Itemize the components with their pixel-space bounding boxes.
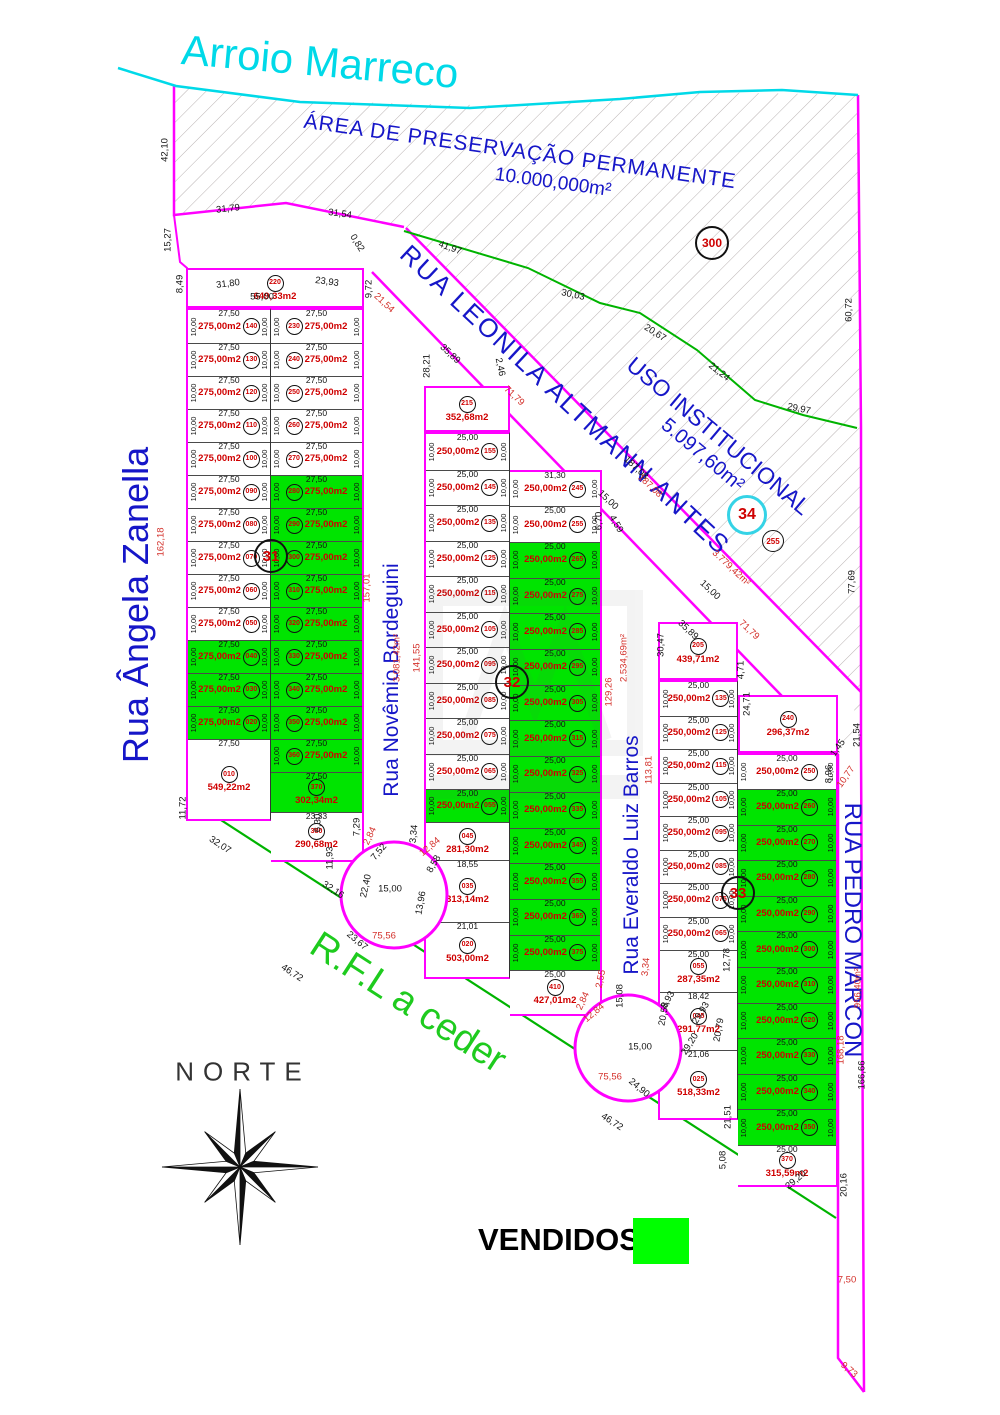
dimension-label: 71,79 bbox=[737, 618, 762, 642]
lot-33-310: 25,00250,00m231010,0010,00 bbox=[738, 967, 836, 1003]
lot-32-275: 25,00250,00m227510,0010,00 bbox=[510, 578, 600, 614]
lot-32-255: 25,00250,00m225510,0010,00 bbox=[510, 506, 600, 542]
lot-area: 313,14m2 bbox=[446, 895, 489, 905]
lot-depth-dim: 10,00 bbox=[352, 582, 361, 601]
dimension-label: 7,50 bbox=[838, 1275, 857, 1286]
lot-area: 275,00m2 bbox=[198, 718, 241, 728]
lot-31-130: 27,50275,00m213010,0010,00 bbox=[188, 343, 270, 376]
lot-depth-dim: 10,00 bbox=[590, 944, 599, 963]
lot-area: 275,00m2 bbox=[198, 586, 241, 596]
lot-number: 310 bbox=[286, 583, 303, 600]
lot-depth-dim: 10,00 bbox=[272, 747, 281, 766]
dimension-label: 55,00 bbox=[250, 292, 274, 303]
lot-frontage-dim: 27,50 bbox=[188, 442, 270, 451]
lot-area: 439,71m2 bbox=[677, 655, 720, 665]
lot-number: 345 bbox=[569, 837, 586, 854]
sold-legend-label: VENDIDOS bbox=[478, 1222, 640, 1257]
lot-depth-dim: 10,00 bbox=[427, 442, 436, 461]
lot-frontage-dim: 27,50 bbox=[271, 607, 362, 616]
lot-frontage-dim: 21,01 bbox=[426, 922, 509, 931]
dimension-label: 8,49 bbox=[175, 275, 186, 294]
lot-33-300: 25,00250,00m230010,0010,00 bbox=[738, 931, 836, 967]
lot-31-330: 27,50330275,00m210,0010,00 bbox=[271, 640, 362, 673]
lot-frontage-dim: 25,00 bbox=[660, 850, 737, 859]
dimension-label: 29,97 bbox=[786, 401, 812, 417]
lot-number: 095 bbox=[481, 657, 498, 674]
lot-depth-dim: 10,00 bbox=[272, 681, 281, 700]
marker-circle-33: 33 bbox=[721, 876, 755, 910]
lot-number: 355 bbox=[569, 873, 586, 890]
lot-depth-dim: 10,00 bbox=[260, 582, 269, 601]
dimension-label: 35,89 bbox=[438, 342, 463, 366]
lot-number: 335 bbox=[569, 802, 586, 819]
lot-32-075: 25,00250,00m207510,0010,00 bbox=[426, 718, 509, 754]
lot-depth-dim: 10,00 bbox=[189, 681, 198, 700]
lot-32-035: 18,55035313,14m2 bbox=[426, 860, 509, 922]
lot-depth-dim: 10,00 bbox=[661, 689, 670, 708]
compass-point bbox=[240, 1132, 275, 1167]
lot-depth-dim: 10,00 bbox=[427, 478, 436, 497]
lot-32-355: 25,00250,00m235510,0010,00 bbox=[510, 863, 600, 899]
lot-depth-dim: 10,00 bbox=[499, 478, 508, 497]
lot-depth-dim: 10,00 bbox=[739, 940, 748, 959]
lot-depth-dim: 10,00 bbox=[511, 587, 520, 606]
dimension-label: 4,59 bbox=[607, 513, 626, 535]
lot-31-060: 27,50275,00m206010,0010,00 bbox=[188, 574, 270, 607]
lot-number: 240 bbox=[286, 352, 303, 369]
lot-depth-dim: 10,00 bbox=[739, 1083, 748, 1102]
lot-depth-dim: 10,00 bbox=[260, 317, 269, 336]
dimension-label: 75,56 bbox=[372, 931, 396, 942]
lot-area: 275,00m2 bbox=[305, 388, 348, 398]
lot-31-100: 27,50275,00m210010,0010,00 bbox=[188, 442, 270, 475]
free-lot-240-box: 240296,37m2 bbox=[738, 695, 838, 753]
lot-31-290: 27,50290275,00m210,0010,00 bbox=[271, 508, 362, 541]
lot-area: 275,00m2 bbox=[305, 685, 348, 695]
lot-depth-dim: 10,00 bbox=[511, 872, 520, 891]
lot-area: 250,00m2 bbox=[756, 767, 799, 777]
lot-depth-dim: 10,00 bbox=[260, 714, 269, 733]
dimension-label: 15,27 bbox=[163, 228, 174, 252]
lot-depth-dim: 10,00 bbox=[511, 801, 520, 820]
lot-depth-dim: 10,00 bbox=[427, 549, 436, 568]
lot-number: 300 bbox=[286, 550, 303, 567]
lot-depth-dim: 10,00 bbox=[272, 384, 281, 403]
dimension-label: 32,07 bbox=[207, 834, 233, 856]
lot-number: 325 bbox=[569, 766, 586, 783]
quadra-33-right-column: 25,00250,00m225010,0010,0025,00250,00m22… bbox=[738, 753, 838, 1187]
lot-depth-dim: 10,00 bbox=[590, 622, 599, 641]
lot-area: 250,00m2 bbox=[756, 802, 799, 812]
lot-31-310: 27,50310275,00m210,0010,00 bbox=[271, 574, 362, 607]
lot-frontage-dim: 27,50 bbox=[188, 640, 270, 649]
lot-area: 250,00m2 bbox=[756, 1123, 799, 1133]
subdivision-plat-map: Arroio Marreco ÁREA DE PRESERVAÇÃO PERMA… bbox=[0, 0, 1000, 1415]
lot-frontage-dim: 25,00 bbox=[660, 681, 737, 690]
lot-31-090: 27,50275,00m209010,0010,00 bbox=[188, 475, 270, 508]
lot-32-245: 31,30250,00m224510,0010,00 bbox=[510, 472, 600, 506]
lot-area: 250,00m2 bbox=[524, 948, 567, 958]
lot-depth-dim: 10,00 bbox=[427, 514, 436, 533]
dimension-label: 141,55 bbox=[412, 643, 423, 672]
compass-point bbox=[205, 1132, 240, 1167]
lot-number: 320 bbox=[801, 1012, 818, 1029]
lot-number: 110 bbox=[243, 418, 260, 435]
lot-number: 050 bbox=[243, 616, 260, 633]
lot-depth-dim: 10,00 bbox=[826, 1083, 835, 1102]
lot-31-030: 27,50275,00m203010,0010,00 bbox=[188, 673, 270, 706]
lot-number: 145 bbox=[481, 479, 498, 496]
lot-number: 140 bbox=[243, 318, 260, 335]
lot-depth-dim: 10,00 bbox=[189, 384, 198, 403]
lot-31-050: 27,50275,00m205010,0010,00 bbox=[188, 607, 270, 640]
lot-depth-dim: 10,00 bbox=[427, 727, 436, 746]
dimension-label: 8,96 bbox=[824, 765, 835, 784]
sold-legend-swatch bbox=[633, 1218, 689, 1264]
lot-31-040: 27,50275,00m204010,0010,00 bbox=[188, 640, 270, 673]
compass-point bbox=[162, 1167, 240, 1173]
lot-frontage-dim: 25,00 bbox=[510, 899, 600, 908]
lot-frontage-dim: 27,50 bbox=[271, 640, 362, 649]
lot-frontage-dim: 25,00 bbox=[426, 789, 509, 798]
dimension-label: 6,30 bbox=[313, 814, 324, 833]
dimension-label: 956,40m² bbox=[853, 968, 864, 1008]
lot-number: 370 bbox=[308, 779, 325, 796]
lot-frontage-dim: 27,50 bbox=[188, 343, 270, 352]
lot-33-135: 25,00250,00m213510,0010,00 bbox=[660, 682, 737, 716]
lot-depth-dim: 10,00 bbox=[739, 798, 748, 817]
lot-frontage-dim: 25,00 bbox=[660, 749, 737, 758]
lot-depth-dim: 10,00 bbox=[661, 757, 670, 776]
lot-depth-dim: 10,00 bbox=[826, 834, 835, 853]
lot-31-010: 27,50010549,22m2 bbox=[188, 739, 270, 819]
lot-area: 250,00m2 bbox=[524, 912, 567, 922]
lot-depth-dim: 10,00 bbox=[499, 442, 508, 461]
lot-frontage-dim: 27,50 bbox=[188, 673, 270, 682]
lot-32-020: 21,01020503,00m2 bbox=[426, 922, 509, 977]
lot-33-115: 25,00250,00m211510,0010,00 bbox=[660, 749, 737, 783]
lot-frontage-dim: 25,00 bbox=[738, 1003, 836, 1012]
lot-area: 275,00m2 bbox=[305, 751, 348, 761]
lot-depth-dim: 10,00 bbox=[661, 824, 670, 843]
lot-area: 250,00m2 bbox=[437, 447, 480, 457]
lot-area: 250,00m2 bbox=[437, 660, 480, 670]
lot-frontage-dim: 27,50 bbox=[188, 706, 270, 715]
dimension-label: 21,24 bbox=[706, 360, 732, 383]
lot-depth-dim: 10,00 bbox=[727, 924, 736, 943]
lot-depth-dim: 10,00 bbox=[189, 417, 198, 436]
lot-free-215: 215352,68m2 bbox=[426, 388, 508, 430]
lot-label: 035313,14m2 bbox=[426, 861, 509, 922]
lot-frontage-dim: 27,50 bbox=[271, 706, 362, 715]
lot-frontage-dim: 25,00 bbox=[510, 756, 600, 765]
lot-frontage-dim: 27,50 bbox=[271, 376, 362, 385]
lot-depth-dim: 10,00 bbox=[352, 317, 361, 336]
lot-depth-dim: 10,00 bbox=[499, 585, 508, 604]
lot-area: 503,00m2 bbox=[446, 954, 489, 964]
sold-legend: VENDIDOS bbox=[478, 1222, 640, 1258]
lot-32-065: 25,00250,00m206510,0010,00 bbox=[426, 754, 509, 790]
lot-depth-dim: 10,00 bbox=[189, 615, 198, 634]
lot-number: 340 bbox=[286, 682, 303, 699]
lot-depth-dim: 10,00 bbox=[272, 516, 281, 535]
lot-32-105: 25,00250,00m210510,0010,00 bbox=[426, 612, 509, 648]
lot-number: 245 bbox=[569, 481, 586, 498]
dimension-label: 162,18 bbox=[156, 527, 167, 556]
lot-32-365: 25,00250,00m236510,0010,00 bbox=[510, 899, 600, 935]
lot-area: 250,00m2 bbox=[668, 929, 711, 939]
lot-number: 055 bbox=[481, 798, 498, 815]
lot-number: 260 bbox=[801, 799, 818, 816]
lot-depth-dim: 10,00 bbox=[727, 857, 736, 876]
lot-area: 275,00m2 bbox=[198, 685, 241, 695]
lot-label: 010549,22m2 bbox=[188, 740, 270, 819]
lot-depth-dim: 10,00 bbox=[590, 729, 599, 748]
dimension-label: 28,21 bbox=[422, 354, 433, 378]
dimension-label: 30,03 bbox=[560, 287, 586, 303]
lot-32-375: 25,00250,00m237510,0010,00 bbox=[510, 935, 600, 971]
lot-depth-dim: 10,00 bbox=[826, 1047, 835, 1066]
lot-area: 275,00m2 bbox=[305, 487, 348, 497]
lot-depth-dim: 10,00 bbox=[352, 714, 361, 733]
lot-depth-dim: 10,00 bbox=[826, 798, 835, 817]
lot-depth-dim: 10,00 bbox=[352, 417, 361, 436]
lot-area: 275,00m2 bbox=[305, 553, 348, 563]
lot-depth-dim: 10,00 bbox=[189, 450, 198, 469]
dimension-label: 22,40 bbox=[358, 873, 374, 899]
lot-area: 275,00m2 bbox=[305, 652, 348, 662]
dimension-label: 21,54 bbox=[372, 291, 397, 315]
marker-circle-31: 31 bbox=[254, 539, 288, 573]
lot-number: 290 bbox=[801, 906, 818, 923]
lot-area: 250,00m2 bbox=[524, 591, 567, 601]
lot-31-320: 27,50320275,00m210,0010,00 bbox=[271, 607, 362, 640]
lot-number: 135 bbox=[481, 515, 498, 532]
dimension-label: 46,72 bbox=[279, 962, 305, 984]
quadra-32-left-column: 25,00250,00m215510,0010,0025,00250,00m21… bbox=[424, 432, 510, 979]
lot-area: 281,30m2 bbox=[446, 845, 489, 855]
lot-number: 260 bbox=[286, 418, 303, 435]
lot-number: 310 bbox=[801, 977, 818, 994]
compass-point bbox=[240, 1089, 246, 1167]
lot-frontage-dim: 27,50 bbox=[271, 574, 362, 583]
lot-frontage-dim: 25,00 bbox=[510, 578, 600, 587]
lot-depth-dim: 10,00 bbox=[739, 1011, 748, 1030]
lot-depth-dim: 10,00 bbox=[499, 727, 508, 746]
free-lot-215-box: 215352,68m2 bbox=[424, 386, 510, 432]
lot-depth-dim: 10,00 bbox=[272, 351, 281, 370]
lot-frontage-dim: 25,00 bbox=[738, 967, 836, 976]
lot-depth-dim: 10,00 bbox=[260, 648, 269, 667]
free-lot-205-box: 205439,71m2 bbox=[658, 622, 738, 680]
lot-frontage-dim: 27,50 bbox=[188, 607, 270, 616]
lot-31-140: 27,50275,00m214010,0010,00 bbox=[188, 310, 270, 343]
compass-point bbox=[240, 1167, 318, 1173]
lot-area: 275,00m2 bbox=[305, 619, 348, 629]
lot-depth-dim: 10,00 bbox=[590, 658, 599, 677]
lot-frontage-dim: 25,00 bbox=[510, 828, 600, 837]
lot-number: 270 bbox=[801, 834, 818, 851]
lot-number: 255 bbox=[569, 516, 586, 533]
lot-number: 100 bbox=[243, 451, 260, 468]
lot-depth-dim: 10,00 bbox=[352, 549, 361, 568]
lot-31-370: 27,50370302,34m2 bbox=[271, 772, 362, 812]
dimension-label: 3.779,42m² bbox=[710, 548, 753, 589]
lot-number: 230 bbox=[286, 318, 303, 335]
dimension-label: 10,77 bbox=[835, 764, 858, 790]
lot-depth-dim: 10,00 bbox=[427, 656, 436, 675]
lot-number: 020 bbox=[459, 937, 476, 954]
lot-depth-dim: 10,00 bbox=[511, 765, 520, 784]
lot-area: 549,22m2 bbox=[208, 783, 251, 793]
dimension-label: 21,51 bbox=[723, 1105, 734, 1129]
lot-area: 296,37m2 bbox=[767, 728, 810, 738]
lot-32-265: 25,00250,00m226510,0010,00 bbox=[510, 542, 600, 578]
lot-number: 305 bbox=[569, 695, 586, 712]
lot-area: 250,00m2 bbox=[668, 828, 711, 838]
compass-point bbox=[205, 1167, 240, 1202]
lot-depth-dim: 10,00 bbox=[260, 615, 269, 634]
marker-circle-300: 300 bbox=[695, 226, 729, 260]
lot-33-350: 25,00250,00m235010,0010,00 bbox=[738, 1109, 836, 1145]
lot-31-270: 27,50270275,00m210,0010,00 bbox=[271, 442, 362, 475]
lot-frontage-dim: 27,50 bbox=[188, 475, 270, 484]
lot-depth-dim: 10,00 bbox=[511, 836, 520, 855]
lot-depth-dim: 10,00 bbox=[739, 976, 748, 995]
lot-area: 250,00m2 bbox=[756, 873, 799, 883]
lot-depth-dim: 10,00 bbox=[272, 582, 281, 601]
lot-number: 040 bbox=[243, 649, 260, 666]
lot-area: 250,00m2 bbox=[524, 484, 567, 494]
lot-33-320: 25,00250,00m232010,0010,00 bbox=[738, 1003, 836, 1039]
lot-depth-dim: 10,00 bbox=[427, 585, 436, 604]
lot-32-135: 25,00250,00m213510,0010,00 bbox=[426, 505, 509, 541]
lot-depth-dim: 10,00 bbox=[826, 1118, 835, 1137]
lot-depth-dim: 10,00 bbox=[189, 516, 198, 535]
lot-depth-dim: 10,00 bbox=[661, 790, 670, 809]
lot-depth-dim: 10,00 bbox=[590, 765, 599, 784]
lot-area: 275,00m2 bbox=[198, 454, 241, 464]
lot-area: 250,00m2 bbox=[756, 838, 799, 848]
compass-point bbox=[240, 1161, 318, 1167]
lot-number: 125 bbox=[481, 550, 498, 567]
lot-area: 302,34m2 bbox=[295, 796, 338, 806]
lot-33-085: 25,00250,00m208510,0010,00 bbox=[660, 850, 737, 884]
lot-frontage-dim: 25,00 bbox=[426, 433, 509, 442]
lot-depth-dim: 10,00 bbox=[427, 797, 436, 816]
dimension-label: 77,69 bbox=[847, 570, 858, 594]
lot-number: 265 bbox=[569, 552, 586, 569]
lot-frontage-dim: 25,00 bbox=[738, 789, 836, 798]
lot-depth-dim: 10,00 bbox=[352, 516, 361, 535]
lot-depth-dim: 10,00 bbox=[260, 681, 269, 700]
lot-area: 250,00m2 bbox=[756, 909, 799, 919]
lot-area: 250,00m2 bbox=[437, 696, 480, 706]
lot-depth-dim: 10,00 bbox=[511, 622, 520, 641]
lot-frontage-dim: 25,00 bbox=[510, 970, 600, 979]
lot-area: 250,00m2 bbox=[437, 589, 480, 599]
lot-depth-dim: 10,00 bbox=[661, 723, 670, 742]
lot-number: 220 bbox=[267, 275, 284, 292]
lot-area: 250,00m2 bbox=[524, 805, 567, 815]
lot-frontage-dim: 27,50 bbox=[188, 508, 270, 517]
lot-depth-dim: 10,00 bbox=[739, 1047, 748, 1066]
lot-depth-dim: 10,00 bbox=[661, 891, 670, 910]
lot-depth-dim: 10,00 bbox=[272, 417, 281, 436]
lot-depth-dim: 10,00 bbox=[511, 480, 520, 499]
lot-depth-dim: 10,00 bbox=[499, 620, 508, 639]
lot-area: 275,00m2 bbox=[198, 619, 241, 629]
lot-depth-dim: 10,00 bbox=[499, 797, 508, 816]
lot-33-330: 25,00250,00m233010,0010,00 bbox=[738, 1038, 836, 1074]
dimension-label: 113,81 bbox=[644, 756, 655, 784]
lot-frontage-dim: 27,50 bbox=[271, 343, 362, 352]
dimension-label: 168,18 bbox=[836, 1035, 847, 1064]
lot-depth-dim: 10,00 bbox=[352, 648, 361, 667]
lot-depth-dim: 10,00 bbox=[260, 450, 269, 469]
lot-frontage-dim: 25,00 bbox=[426, 576, 509, 585]
lot-number: 330 bbox=[801, 1048, 818, 1065]
lot-area: 250,00m2 bbox=[437, 625, 480, 635]
lot-depth-dim: 10,00 bbox=[352, 615, 361, 634]
lot-frontage-dim: 27,50 bbox=[271, 739, 362, 748]
lot-number: 315 bbox=[569, 730, 586, 747]
dimension-label: 5,08 bbox=[718, 1151, 729, 1170]
lot-number: 240 bbox=[780, 711, 797, 728]
lot-depth-dim: 10,00 bbox=[260, 417, 269, 436]
lot-number: 330 bbox=[286, 649, 303, 666]
lot-depth-dim: 10,00 bbox=[189, 351, 198, 370]
marker-circle-255: 255 bbox=[762, 530, 784, 552]
lot-33-250: 25,00250,00m225010,0010,00 bbox=[738, 755, 836, 789]
lot-depth-dim: 10,00 bbox=[189, 549, 198, 568]
lot-area: 275,00m2 bbox=[305, 421, 348, 431]
lot-31-280: 27,50280275,00m210,0010,00 bbox=[271, 475, 362, 508]
lot-depth-dim: 10,00 bbox=[739, 834, 748, 853]
dimension-label: 46,72 bbox=[599, 1111, 625, 1133]
lot-depth-dim: 10,00 bbox=[590, 551, 599, 570]
lot-number: 375 bbox=[569, 944, 586, 961]
lot-depth-dim: 10,00 bbox=[189, 648, 198, 667]
lot-number: 065 bbox=[481, 763, 498, 780]
lot-31-360: 27,50360275,00m210,0010,00 bbox=[271, 739, 362, 772]
marker-circle-34: 34 bbox=[727, 495, 767, 535]
lot-frontage-dim: 25,00 bbox=[738, 860, 836, 869]
lot-area: 275,00m2 bbox=[305, 355, 348, 365]
lot-frontage-dim: 27,50 bbox=[271, 772, 362, 781]
lot-number: 340 bbox=[801, 1084, 818, 1101]
compass-point bbox=[205, 1167, 240, 1202]
dimension-label: 75,56 bbox=[598, 1072, 622, 1083]
lot-number: 250 bbox=[286, 385, 303, 402]
dimension-label: 32,16 bbox=[320, 879, 346, 901]
lot-31-350: 27,50350275,00m210,0010,00 bbox=[271, 706, 362, 739]
lot-number: 010 bbox=[221, 766, 238, 783]
stream-label: Arroio Marreco bbox=[180, 26, 461, 98]
lot-depth-dim: 10,00 bbox=[590, 836, 599, 855]
street-rua-angela-zanella: Rua Ângela Zanella bbox=[115, 447, 157, 763]
dimension-label: 42,10 bbox=[160, 138, 171, 162]
lot-number: 280 bbox=[801, 870, 818, 887]
lot-area: 275,00m2 bbox=[305, 454, 348, 464]
lot-number: 370 bbox=[779, 1152, 796, 1169]
lot-frontage-dim: 25,00 bbox=[510, 542, 600, 551]
lot-32-115: 25,00250,00m211510,0010,00 bbox=[426, 576, 509, 612]
lot-number: 295 bbox=[569, 659, 586, 676]
lot-depth-dim: 10,00 bbox=[826, 1011, 835, 1030]
lot-depth-dim: 10,00 bbox=[511, 729, 520, 748]
lot-31-260: 27,50260275,00m210,0010,00 bbox=[271, 409, 362, 442]
